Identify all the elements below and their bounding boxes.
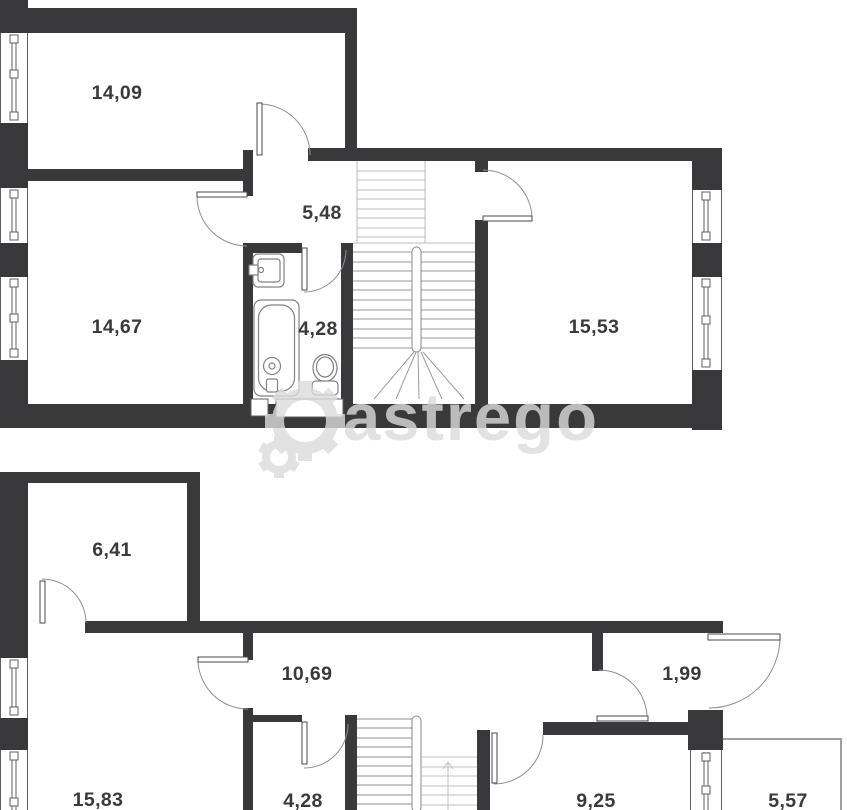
room-area-label: 14,67	[92, 316, 143, 338]
door-swing	[597, 670, 648, 721]
room-area-label: 9,25	[576, 790, 616, 810]
walls-lower	[0, 472, 723, 810]
walls-upper	[0, 0, 722, 430]
door-swing	[483, 170, 532, 221]
watermark: astrego	[258, 380, 599, 478]
window	[0, 750, 28, 810]
room-area-label: 5,48	[302, 202, 342, 224]
window	[0, 277, 28, 360]
floor-plan-upper: 14,09 5,48 14,67 4,28 15,53	[0, 0, 722, 430]
window	[690, 750, 722, 810]
room-area-label: 5,57	[768, 790, 808, 810]
floor-plan-drawing: 14,09 5,48 14,67 4,28 15,53	[0, 0, 847, 810]
staircase-upper	[353, 161, 475, 399]
bathtub-fixture	[254, 300, 299, 396]
door-swing	[40, 579, 86, 623]
door-swing	[198, 657, 248, 709]
room-area-label: 6,41	[92, 539, 132, 561]
floor-plan-lower: 6,41 10,69 1,99 15,83 4,28 9,25 5,57	[0, 472, 842, 810]
window	[0, 188, 28, 243]
floor-plan-page: 14,09 5,48 14,67 4,28 15,53	[0, 0, 847, 810]
window	[0, 658, 28, 718]
door-swing	[492, 733, 543, 784]
window	[692, 190, 722, 243]
door-swing	[197, 192, 247, 246]
room-area-label: 10,69	[282, 663, 333, 685]
watermark-text: astrego	[343, 380, 599, 455]
door-swing	[302, 248, 346, 292]
door-swing	[302, 722, 348, 768]
room-area-label: 1,99	[662, 663, 702, 685]
sink-fixture	[249, 254, 284, 287]
window	[0, 33, 28, 123]
door-swing entry-door	[708, 634, 780, 708]
room-area-label: 14,09	[92, 82, 143, 104]
room-area-label: 15,83	[73, 789, 124, 810]
room-area-label: 4,28	[298, 318, 338, 340]
staircase-lower	[357, 716, 477, 810]
toilet-fixture	[312, 355, 338, 396]
door-swing	[257, 103, 310, 155]
room-area-label: 4,28	[283, 790, 323, 810]
window	[692, 277, 722, 370]
room-area-label: 15,53	[569, 316, 620, 338]
